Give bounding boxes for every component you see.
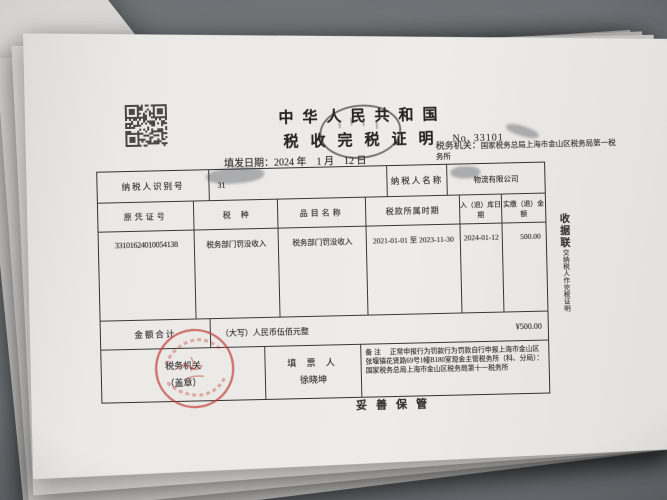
header-tax-type: 税种	[194, 200, 279, 230]
cell-paid-amount: 500.00	[502, 223, 547, 312]
table-data-row: 33101624010054138 税务部门罚没收入 税务部门罚没收入 2021…	[99, 223, 548, 322]
remark-cell: 备注 正常申报行为罚款行为罚款自行申报上海市金山区张堰镇花贤路69号1幢B180…	[361, 341, 549, 397]
remark-text: 正常申报行为罚款行为罚款自行申报上海市金山区张堰镇花贤路69号1幢B180室现金…	[365, 346, 543, 375]
qr-code	[125, 104, 168, 147]
cell-item-name: 税务部门罚没收入	[279, 227, 369, 317]
cell-tax-type: 税务部门罚没收入	[195, 229, 281, 319]
header-item-name: 品目名称	[278, 198, 367, 228]
taxpayer-id-value: 31	[209, 166, 388, 200]
tax-authority: 税务机关：国家税务总局上海市金山区税务局第一税务所	[436, 138, 621, 162]
cell-payment-date: 2024-01-12	[460, 224, 504, 313]
taxpayer-name-label: 纳税人名称	[387, 165, 448, 196]
header-payment-date: 入（退）库日期	[460, 195, 503, 224]
total-amount-figure: ¥500.00	[516, 321, 542, 331]
red-official-round-stamp	[147, 321, 242, 416]
taxpayer-id-label: 纳税人识别号	[97, 170, 210, 203]
tax-authority-label: 税务机关：	[436, 140, 481, 151]
cell-tax-period: 2021-01-01 至 2023-11-30	[366, 224, 462, 314]
cell-voucher-no: 33101624010054138	[99, 231, 197, 321]
copy-name-vertical: 收据联	[555, 213, 571, 249]
header-original-voucher-no: 原凭证号	[98, 202, 195, 232]
photo-of-tax-certificate: 中华人民共和国 税收完税证明 No. 33101 填发日期：2024 年 1 月…	[0, 0, 667, 500]
total-amount-words: （大写）人民币伍佰元整	[221, 325, 309, 338]
header-tax-period: 税款所属时期	[366, 195, 461, 225]
remark-label: 备注	[365, 349, 383, 356]
filler-label: 填 票 人	[287, 354, 339, 372]
keep-safe-note: 妥善保管	[311, 394, 471, 414]
smudge-mark-top	[505, 121, 540, 140]
taxpayer-name-value: 物流有限公司	[447, 163, 545, 195]
copy-note-vertical: 交纳税人作完税证明	[559, 249, 570, 312]
filler-cell: 填 票 人 徐晓坤	[265, 345, 362, 399]
header-paid-amount: 实缴（退）金额	[502, 194, 546, 223]
filler-name: 徐晓坤	[300, 372, 327, 390]
tax-certificate-sheet: 中华人民共和国 税收完税证明 No. 33101 填发日期：2024 年 1 月…	[23, 19, 667, 479]
